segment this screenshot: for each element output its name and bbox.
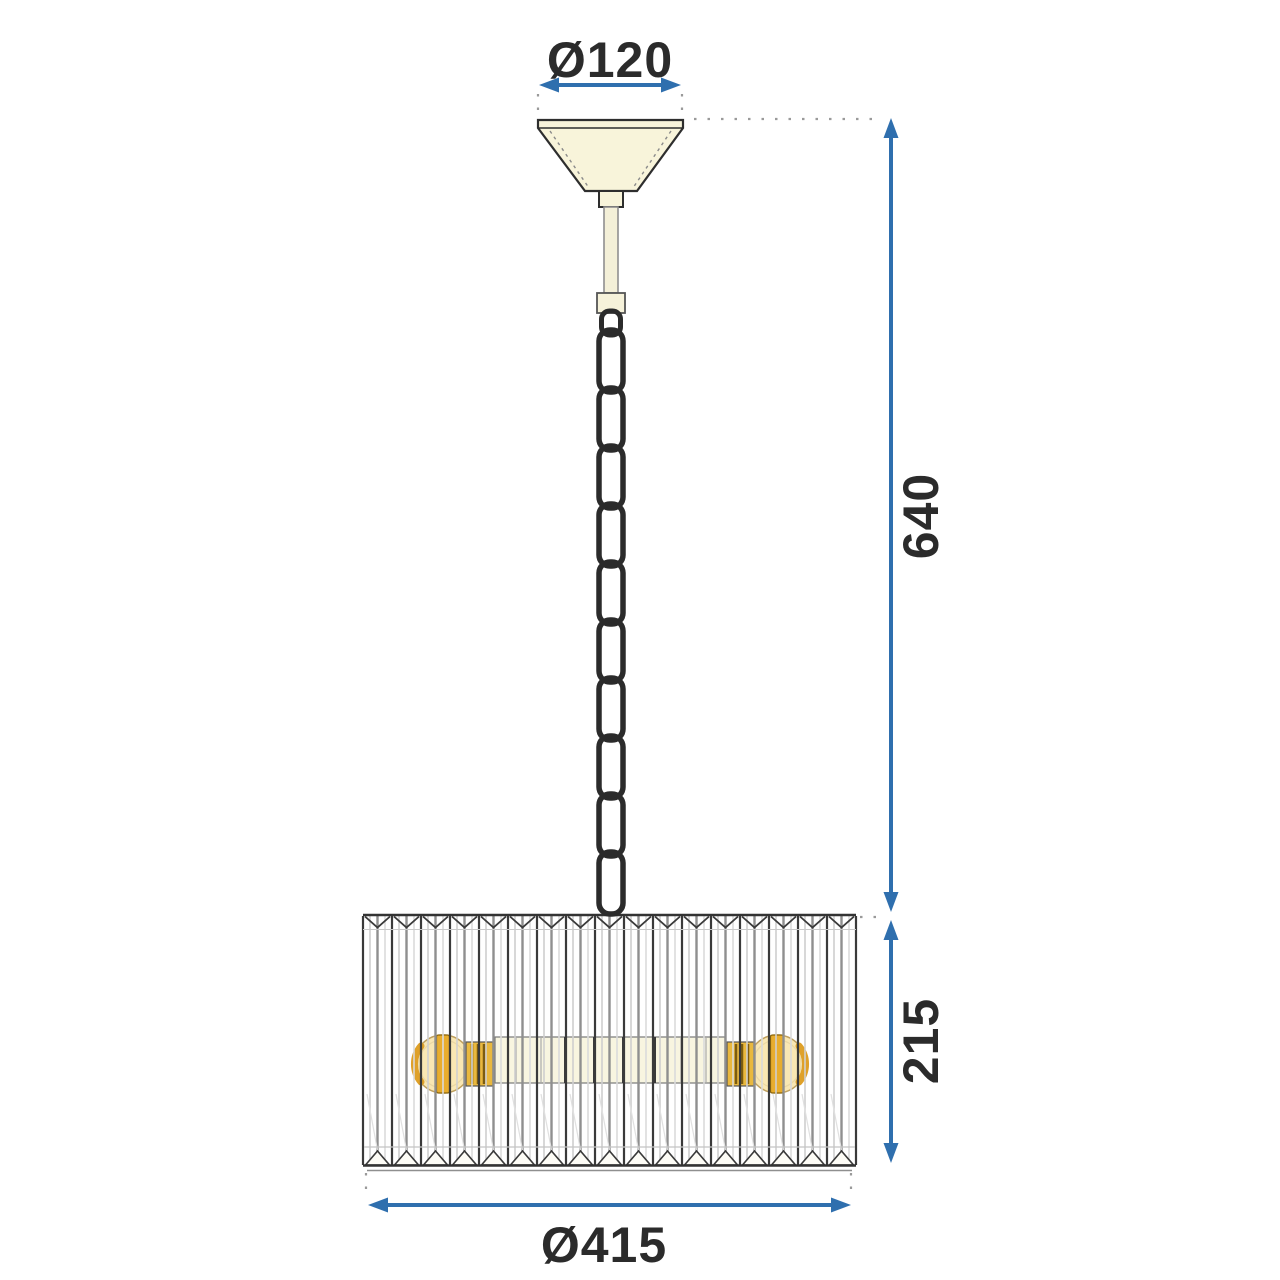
chain-link: [599, 736, 623, 798]
crystal-bottom-prism: [511, 1151, 535, 1165]
crystal-bottom-prism: [656, 1151, 680, 1165]
crystal-facet-line: [657, 1094, 668, 1150]
canopy-body: [538, 120, 683, 191]
crystal-bottom-prism: [772, 1151, 796, 1165]
crystal-bottom-prism: [482, 1151, 506, 1165]
dimension-drop-height: 640: [884, 118, 950, 912]
chain-link: [599, 330, 623, 392]
crystal-facet-line: [454, 1094, 465, 1150]
bulb-filament-bar: [771, 1035, 784, 1093]
arrow-left-icon: [368, 1198, 388, 1213]
arrow-up-icon: [884, 920, 899, 940]
ceiling-canopy: [538, 120, 683, 207]
crystal-facet-line: [773, 1094, 784, 1150]
bulb-left: [414, 1035, 493, 1093]
crystal-bottom-prism: [685, 1151, 709, 1165]
chain-link: [599, 504, 623, 566]
shade-diameter-label: Ø415: [541, 1217, 667, 1273]
dimension-shade-height: 215: [884, 920, 950, 1163]
crystal-bottom-prism: [627, 1151, 651, 1165]
crystal-facet-line: [831, 1094, 842, 1150]
crystal-facet-line: [367, 1094, 378, 1150]
drop-height-label: 640: [893, 473, 949, 559]
crystal-facet-line: [715, 1094, 726, 1150]
crystal-bottom-prism: [830, 1151, 854, 1165]
chain-link: [599, 794, 623, 856]
crystal-facet-line: [483, 1094, 494, 1150]
chain-link: [599, 388, 623, 450]
crystal-facet-line: [744, 1094, 755, 1150]
shade-height-label: 215: [893, 998, 949, 1084]
crystal-bottom-prism: [598, 1151, 622, 1165]
dimension-shade-diameter: Ø415: [368, 1198, 851, 1274]
arrow-up-icon: [884, 118, 899, 138]
canopy-connector: [599, 191, 623, 207]
crystal-facet-line: [570, 1094, 581, 1150]
arrow-down-icon: [884, 1143, 899, 1163]
crystal-facet-line: [396, 1094, 407, 1150]
chain-link: [599, 678, 623, 740]
crystal-facet-line: [628, 1094, 639, 1150]
crystal-bottom-prism: [801, 1151, 825, 1165]
crystal-facet-line: [686, 1094, 697, 1150]
arrow-down-icon: [884, 892, 899, 912]
crystal-bottom-prism: [714, 1151, 738, 1165]
crystal-facet-line: [512, 1094, 523, 1150]
technical-drawing-page: Ø120 640 215 Ø415: [0, 0, 1280, 1280]
crystal-bottom-prism: [366, 1151, 390, 1165]
bulb-right: [727, 1035, 806, 1093]
crystal-facet-line: [802, 1094, 813, 1150]
crystal-bottom-prism: [453, 1151, 477, 1165]
lampshade: [363, 915, 856, 1171]
chain-link: [599, 562, 623, 624]
chain-link: [599, 852, 623, 914]
crystal-bottom-prism: [743, 1151, 767, 1165]
chain: [599, 311, 623, 914]
rod: [604, 207, 618, 293]
drawing-canvas: Ø120 640 215 Ø415: [0, 0, 1280, 1280]
crystal-bottom-prism: [395, 1151, 419, 1165]
crystal-facet-line: [541, 1094, 552, 1150]
chain-link: [599, 446, 623, 508]
chain-link: [599, 620, 623, 682]
dimension-canopy-diameter: Ø120: [538, 32, 682, 116]
crystal-bottom-prism: [569, 1151, 593, 1165]
crystal-facet-line: [599, 1094, 610, 1150]
crystal-bottom-prism: [540, 1151, 564, 1165]
crystal-bottom-prism: [424, 1151, 448, 1165]
canopy-diameter-label: Ø120: [547, 32, 673, 88]
suspension-rod: [597, 207, 625, 313]
arrow-right-icon: [831, 1198, 851, 1213]
crystal-facet-line: [425, 1094, 436, 1150]
